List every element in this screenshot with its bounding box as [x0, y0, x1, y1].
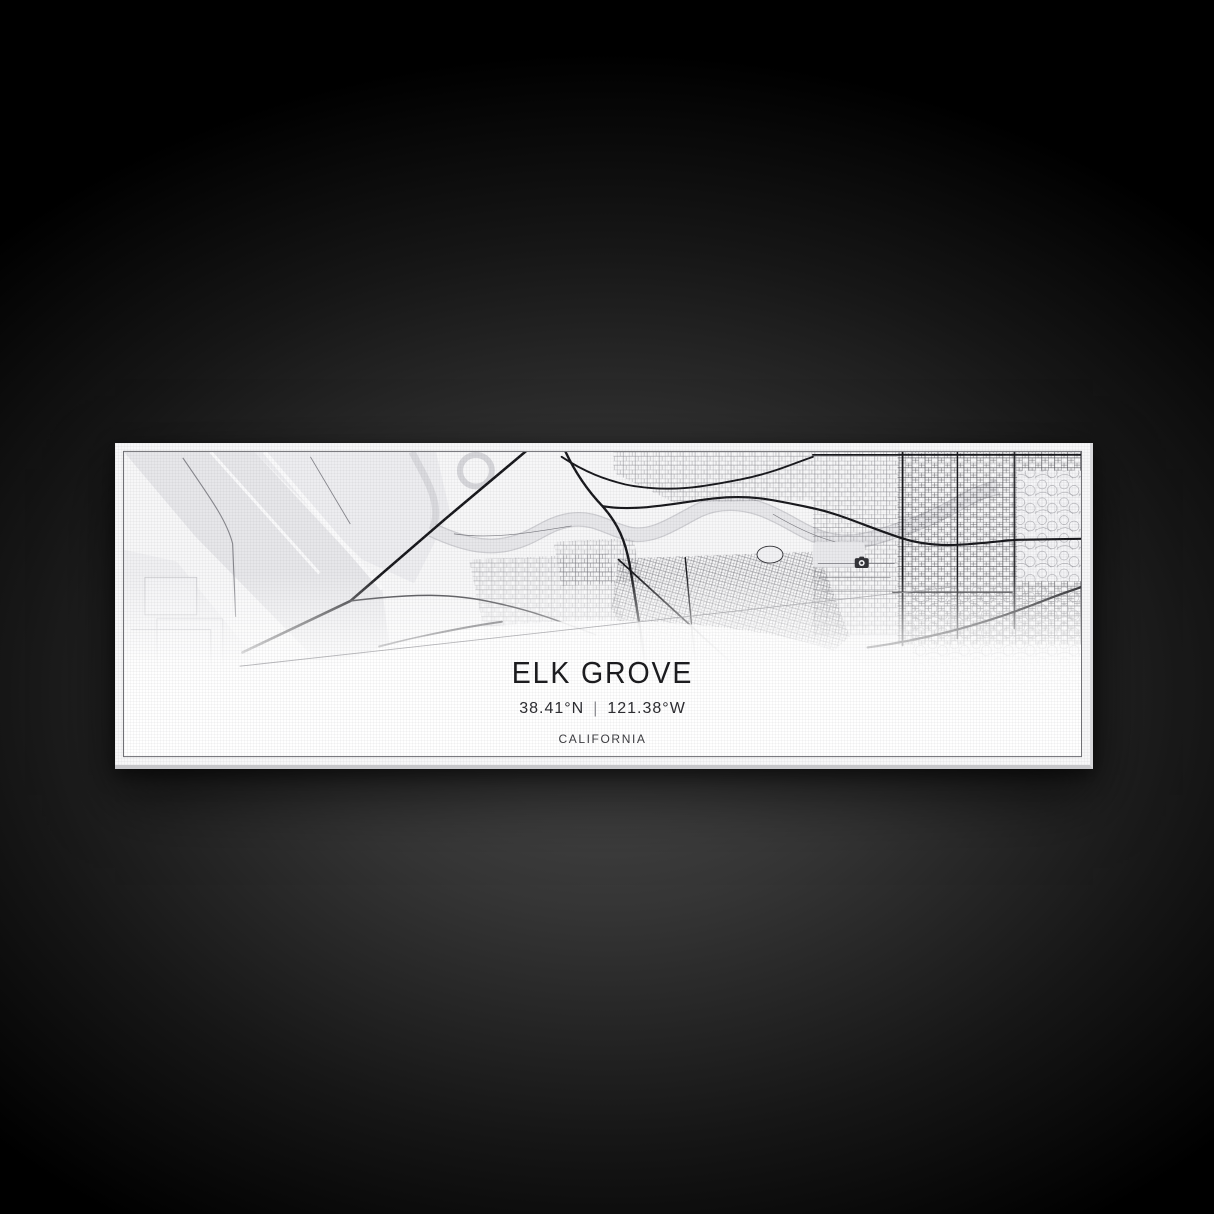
city-street-map: [115, 443, 1090, 765]
map-fade: [124, 452, 1081, 763]
canvas-print: ELK GROVE 38.41°N|121.38°W CALIFORNIA: [115, 443, 1093, 769]
product-photo-backdrop: ELK GROVE 38.41°N|121.38°W CALIFORNIA: [0, 0, 1214, 1214]
